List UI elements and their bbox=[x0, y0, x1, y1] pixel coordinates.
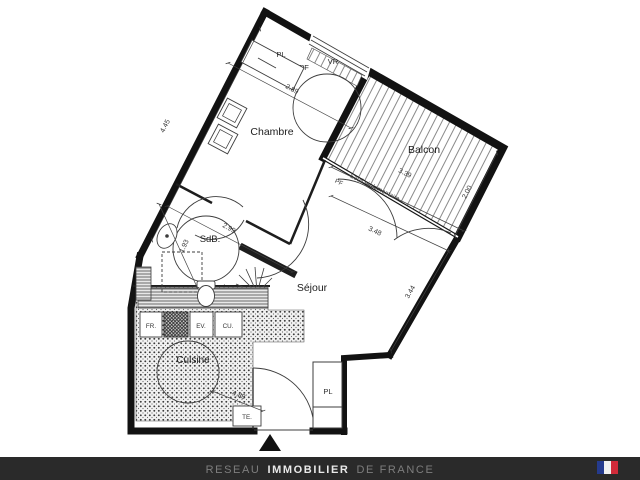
closet-bottom: PL bbox=[313, 362, 342, 428]
toilet-icon bbox=[198, 286, 215, 307]
closet-top-label: PL bbox=[276, 50, 285, 59]
flag-white-band bbox=[604, 461, 611, 474]
appliance-column bbox=[136, 267, 151, 300]
flag-red-band bbox=[611, 461, 618, 474]
closet-bottom-label: PL bbox=[323, 387, 332, 396]
fridge-label: FR. bbox=[146, 323, 156, 330]
room-label-cuisine: Cuisine bbox=[176, 355, 210, 366]
flag-blue-band bbox=[597, 461, 604, 474]
floor-plan: PF VR PL FR. EV. CU. bbox=[0, 0, 640, 480]
footer-brand: RESEAUIMMOBILIERDE FRANCE bbox=[206, 464, 435, 476]
room-label-sejour: Séjour bbox=[297, 282, 328, 294]
room-label-balcon: Balcon bbox=[408, 144, 440, 156]
washbasin-drain bbox=[165, 234, 169, 238]
footer-word-reseau: RESEAU bbox=[206, 464, 261, 476]
cooktop-hatch bbox=[164, 312, 188, 337]
footer-word-immobilier: IMMOBILIER bbox=[267, 464, 349, 476]
cooktop-label: CU. bbox=[223, 323, 234, 330]
french-flag-icon bbox=[597, 461, 618, 474]
room-label-sdb: SdB. bbox=[200, 234, 221, 245]
sink-label: EV. bbox=[196, 323, 206, 330]
electrical-label: TE. bbox=[242, 414, 252, 421]
footer-word-defrance: DE FRANCE bbox=[356, 464, 434, 476]
footer-bar: RESEAUIMMOBILIERDE FRANCE bbox=[0, 457, 640, 480]
room-label-chambre: Chambre bbox=[250, 126, 293, 138]
shutter-vr-label: VR bbox=[328, 57, 339, 66]
